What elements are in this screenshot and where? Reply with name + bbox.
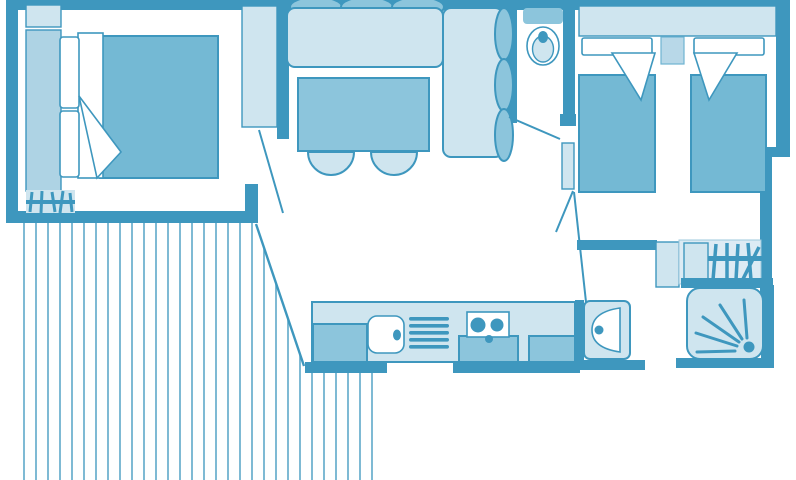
dining-table <box>298 78 429 151</box>
sofa-bench-top <box>287 8 443 67</box>
wall-rack-bottom <box>681 278 773 288</box>
base-cabinet <box>313 324 367 362</box>
kitchen <box>312 302 575 362</box>
sofa-cushion <box>495 8 513 60</box>
toilet-tank <box>523 8 563 24</box>
luggage-rack <box>26 190 75 213</box>
bedroom-door-leaf <box>562 143 574 189</box>
wall-basin-bottom <box>575 360 645 370</box>
wall-post <box>245 184 258 223</box>
sofa-cushion <box>495 59 513 111</box>
corner-shelf <box>26 5 61 27</box>
hall-cabinet <box>656 242 679 287</box>
sofa-bench-right <box>443 8 503 157</box>
rack-cabinet <box>684 243 708 282</box>
toilet-seat-dot <box>538 31 548 43</box>
wall-kitchen-bath-divider <box>575 300 584 362</box>
closet <box>242 6 277 127</box>
wall-door-hinge-stub <box>560 114 576 126</box>
pillow <box>60 111 79 177</box>
pillow <box>60 37 79 108</box>
wc-door-swing-line <box>509 117 560 139</box>
wall-kitchen-bottom-right <box>453 362 580 373</box>
wardrobe <box>26 30 61 191</box>
nightstand <box>661 37 684 64</box>
wall-left <box>6 0 18 223</box>
stool <box>371 152 417 175</box>
bathroom <box>584 240 773 359</box>
hob-knob <box>485 335 493 343</box>
living-room <box>287 0 513 175</box>
headboard-shelf <box>579 6 776 36</box>
stool <box>308 152 354 175</box>
wall-hall-top <box>577 240 657 250</box>
master-bedroom <box>26 5 283 213</box>
single-bed-blanket-right <box>691 75 766 192</box>
bedroom-door-swing-line <box>259 130 283 213</box>
floorplan-page <box>0 0 796 480</box>
wall-kitchen-bottom-left <box>305 362 387 373</box>
floorplan-drawing <box>0 0 796 480</box>
wall-right-top <box>776 0 790 153</box>
base-cabinet <box>529 336 575 362</box>
door-swing-line <box>556 191 573 232</box>
faucet <box>393 330 401 341</box>
wc-room <box>509 8 563 139</box>
burner <box>471 318 486 333</box>
wall-wc-right <box>563 0 575 116</box>
washbasin-drain-dot <box>595 326 604 335</box>
burner <box>491 319 504 332</box>
shower-drain-dot <box>744 342 755 353</box>
